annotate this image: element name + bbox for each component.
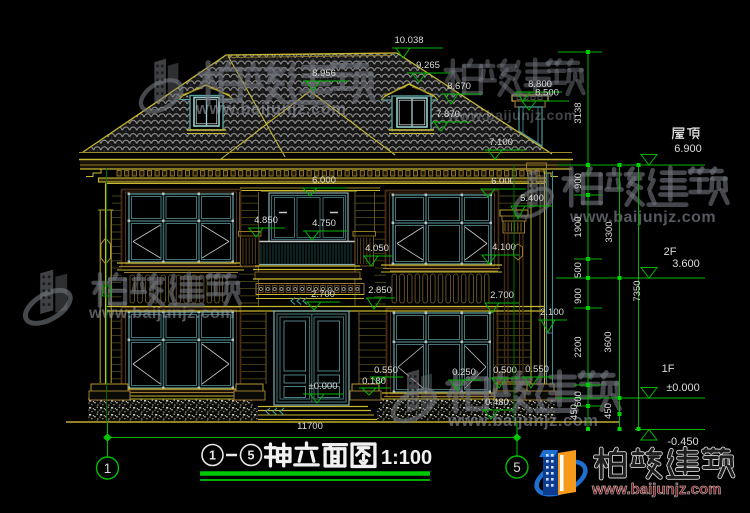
svg-text:900: 900	[573, 173, 584, 189]
svg-text:6.000: 6.000	[491, 176, 515, 187]
svg-text:10.038: 10.038	[394, 35, 423, 46]
svg-text:7.100: 7.100	[489, 137, 513, 148]
svg-text:5.400: 5.400	[520, 193, 544, 204]
svg-text:3300: 3300	[604, 221, 615, 242]
svg-text:0.550: 0.550	[374, 365, 398, 376]
svg-text:11700: 11700	[297, 421, 323, 432]
svg-text:1:100: 1:100	[381, 447, 432, 469]
svg-text:-0.450: -0.450	[667, 436, 698, 448]
svg-text:8.670: 8.670	[447, 81, 471, 92]
svg-text:4.050: 4.050	[365, 243, 389, 254]
svg-text:1: 1	[104, 461, 112, 476]
svg-text:0.250: 0.250	[452, 367, 476, 378]
svg-text:3138: 3138	[573, 102, 584, 123]
svg-text:8.500: 8.500	[535, 88, 559, 99]
svg-text:2.700: 2.700	[311, 289, 335, 300]
svg-text:0.550: 0.550	[525, 364, 549, 375]
svg-text:0.180: 0.180	[362, 376, 386, 387]
svg-text:900: 900	[573, 288, 584, 304]
svg-text:±0.000: ±0.000	[666, 382, 700, 394]
svg-text:2F: 2F	[664, 246, 677, 258]
svg-text:4.850: 4.850	[254, 215, 278, 226]
svg-text:1: 1	[209, 449, 216, 463]
svg-text:2.850: 2.850	[368, 285, 392, 296]
svg-text:www.baijunjz.com: www.baijunjz.com	[591, 481, 721, 498]
svg-text:3600: 3600	[603, 331, 614, 352]
svg-text:450: 450	[569, 404, 580, 420]
svg-text:7350: 7350	[632, 280, 643, 301]
svg-text:7.870: 7.870	[436, 109, 460, 120]
svg-text:www.baijunjz.com: www.baijunjz.com	[88, 305, 235, 322]
svg-text:0.500: 0.500	[493, 365, 517, 376]
svg-text:2.100: 2.100	[540, 307, 564, 318]
svg-text:1F: 1F	[662, 363, 675, 375]
svg-text:0.480: 0.480	[485, 397, 509, 408]
svg-text:4.100: 4.100	[492, 242, 516, 253]
svg-text:500: 500	[573, 262, 584, 278]
svg-text:450: 450	[603, 403, 614, 419]
svg-text:2.700: 2.700	[490, 290, 514, 301]
svg-text:www.baijunjz.com: www.baijunjz.com	[195, 100, 346, 118]
svg-text:6.900: 6.900	[674, 143, 702, 155]
svg-text:1900: 1900	[573, 216, 584, 237]
svg-text:5: 5	[248, 449, 255, 463]
svg-text:6.000: 6.000	[312, 175, 336, 186]
svg-text:5: 5	[513, 460, 521, 475]
svg-text:2200: 2200	[573, 336, 584, 357]
svg-text:±0.000: ±0.000	[309, 381, 338, 392]
svg-text:3.600: 3.600	[672, 258, 700, 270]
svg-text:9.265: 9.265	[416, 60, 440, 71]
svg-text:4.750: 4.750	[312, 218, 336, 229]
svg-text:www.baijunjz.com: www.baijunjz.com	[447, 107, 577, 123]
svg-text:www.baijunjz.com: www.baijunjz.com	[569, 209, 716, 226]
svg-text:8.956: 8.956	[312, 68, 336, 79]
